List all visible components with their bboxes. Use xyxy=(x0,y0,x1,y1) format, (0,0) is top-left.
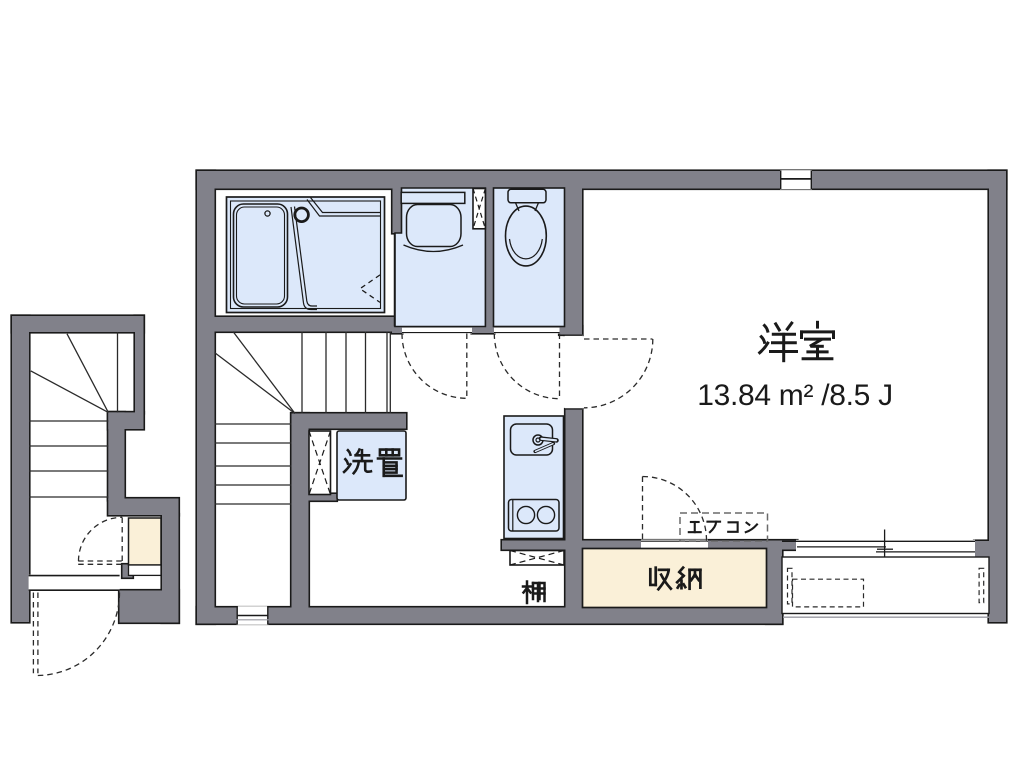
svg-text:13.84 m² /8.5 J: 13.84 m² /8.5 J xyxy=(697,379,893,412)
